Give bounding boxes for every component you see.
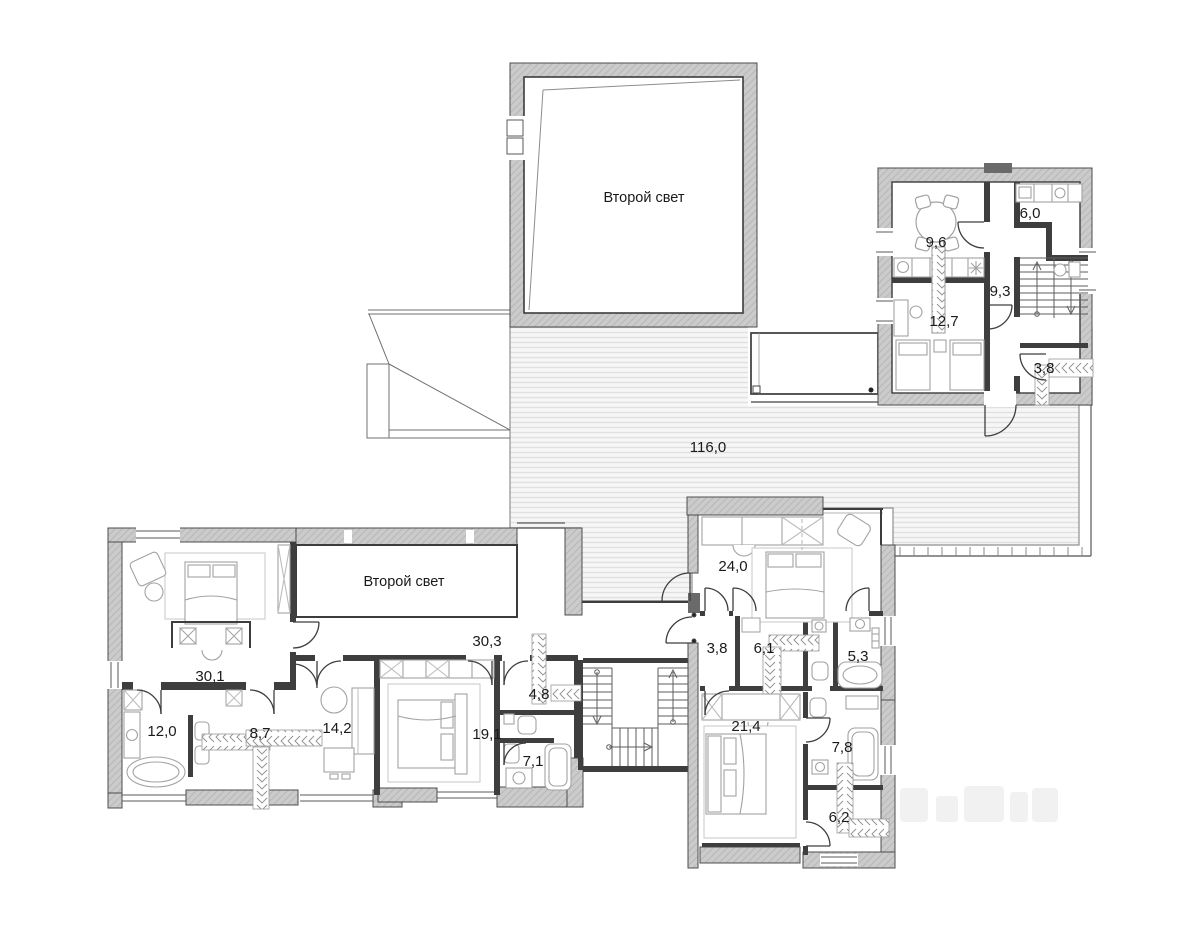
room-19-1-label: 19,1 [472, 726, 501, 743]
room-24-0-label: 24,0 [718, 558, 747, 575]
room-8-7-label: 8,7 [250, 725, 271, 742]
room-6-0-label: 6,0 [1020, 205, 1041, 222]
room-3-8-top-label: 3,8 [1034, 360, 1055, 377]
room-12-0-label: 12,0 [147, 723, 176, 740]
corridor-30-3-label: 30,3 [472, 633, 501, 650]
door-opening [984, 391, 1016, 407]
terrace-area-label: 116,0 [690, 439, 726, 456]
guest-block: 9,6 6,0 9,3 12,7 3,8 [875, 163, 1098, 436]
room-6-1-label: 6,1 [754, 640, 775, 657]
stairs-main [583, 668, 688, 766]
room-4-8-label: 4,8 [529, 686, 550, 703]
roof-sketch [367, 310, 510, 438]
floor-plan: 116,0 Второй свет [0, 0, 1200, 932]
bedroom-19-1 [380, 660, 494, 782]
room-30-1-label: 30,1 [195, 668, 224, 685]
room-14-2-label: 14,2 [322, 720, 351, 737]
second-light-inner-label: Второй свет [363, 574, 444, 590]
room-9-3-label: 9,3 [990, 283, 1011, 300]
room-9-6-label: 9,6 [926, 234, 947, 251]
room-12-7-label: 12,7 [929, 313, 958, 330]
room-21-4-label: 21,4 [731, 718, 760, 735]
wardrobe-rack [1049, 359, 1093, 377]
watermark [900, 786, 1058, 822]
vent-shaft [984, 163, 1012, 173]
floor-plan-svg: 116,0 Второй свет [0, 0, 1200, 932]
railing-posts [900, 547, 1082, 556]
bedroom-21-4 [702, 694, 800, 838]
second-light-top-room: Второй свет [506, 63, 757, 327]
lower-roof-square [748, 300, 880, 406]
room-7-8-label: 7,8 [832, 739, 853, 756]
second-light-top-label: Второй свет [603, 190, 684, 206]
room-6-2-label: 6,2 [829, 809, 850, 826]
right-wing: 24,0 3,8 6,1 5,3 21,4 7,8 6,2 [662, 497, 897, 868]
room-7-1-label: 7,1 [523, 753, 544, 770]
room-3-8-hall-label: 3,8 [707, 640, 728, 657]
room-5-3-label: 5,3 [848, 648, 869, 665]
